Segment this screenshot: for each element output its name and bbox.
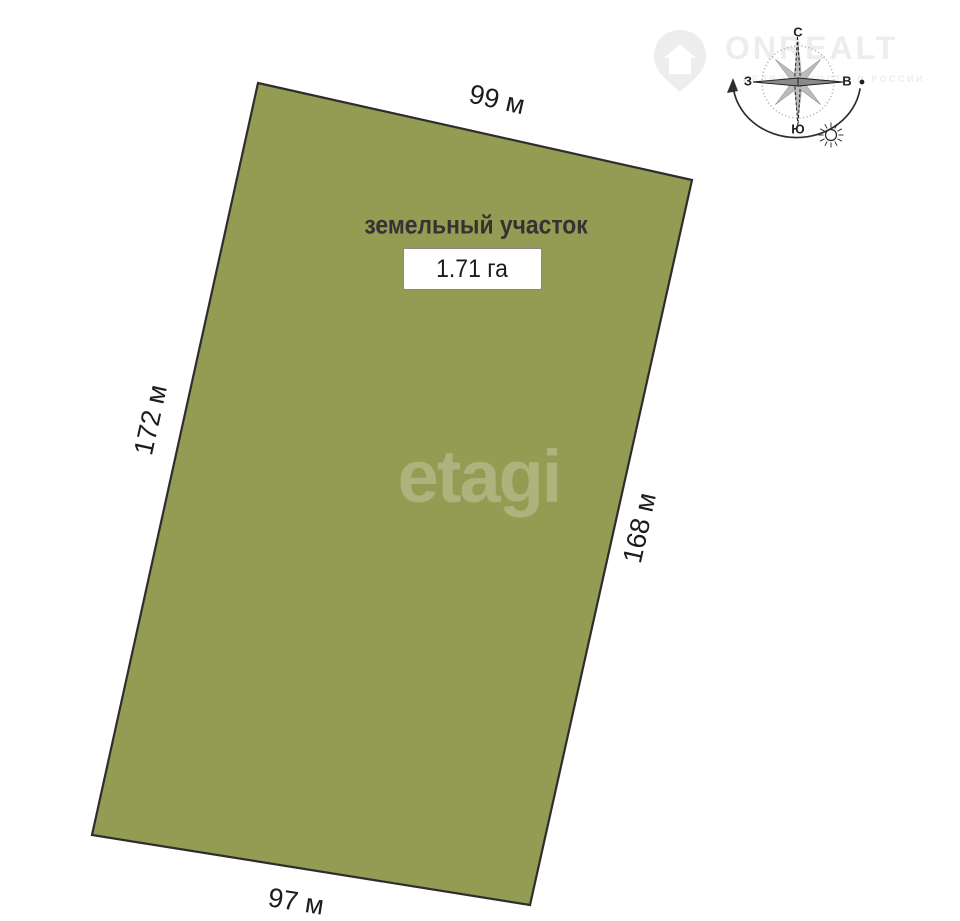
compass-south-label: Ю [791,123,804,136]
compass-east-label: В [842,75,851,88]
compass-west-label: З [744,75,752,88]
plot-area-box: 1.71 га [403,248,542,290]
etagi-watermark-text: etagi [398,440,561,514]
dimension-label-bottom: 97 м [266,884,326,919]
compass-arc-arrowhead [727,78,738,93]
onrealt-pin-logo-icon [654,30,706,92]
compass-arc-start-dot [860,80,865,85]
compass-needle-west [753,78,798,86]
land-parcel-polygon [92,83,692,905]
plot-area-value: 1.71 га [437,255,509,284]
compass-north-label: С [793,26,802,39]
plot-title: земельный участок [364,210,587,241]
compass-needle-east [798,78,843,86]
sun-icon [819,123,844,148]
